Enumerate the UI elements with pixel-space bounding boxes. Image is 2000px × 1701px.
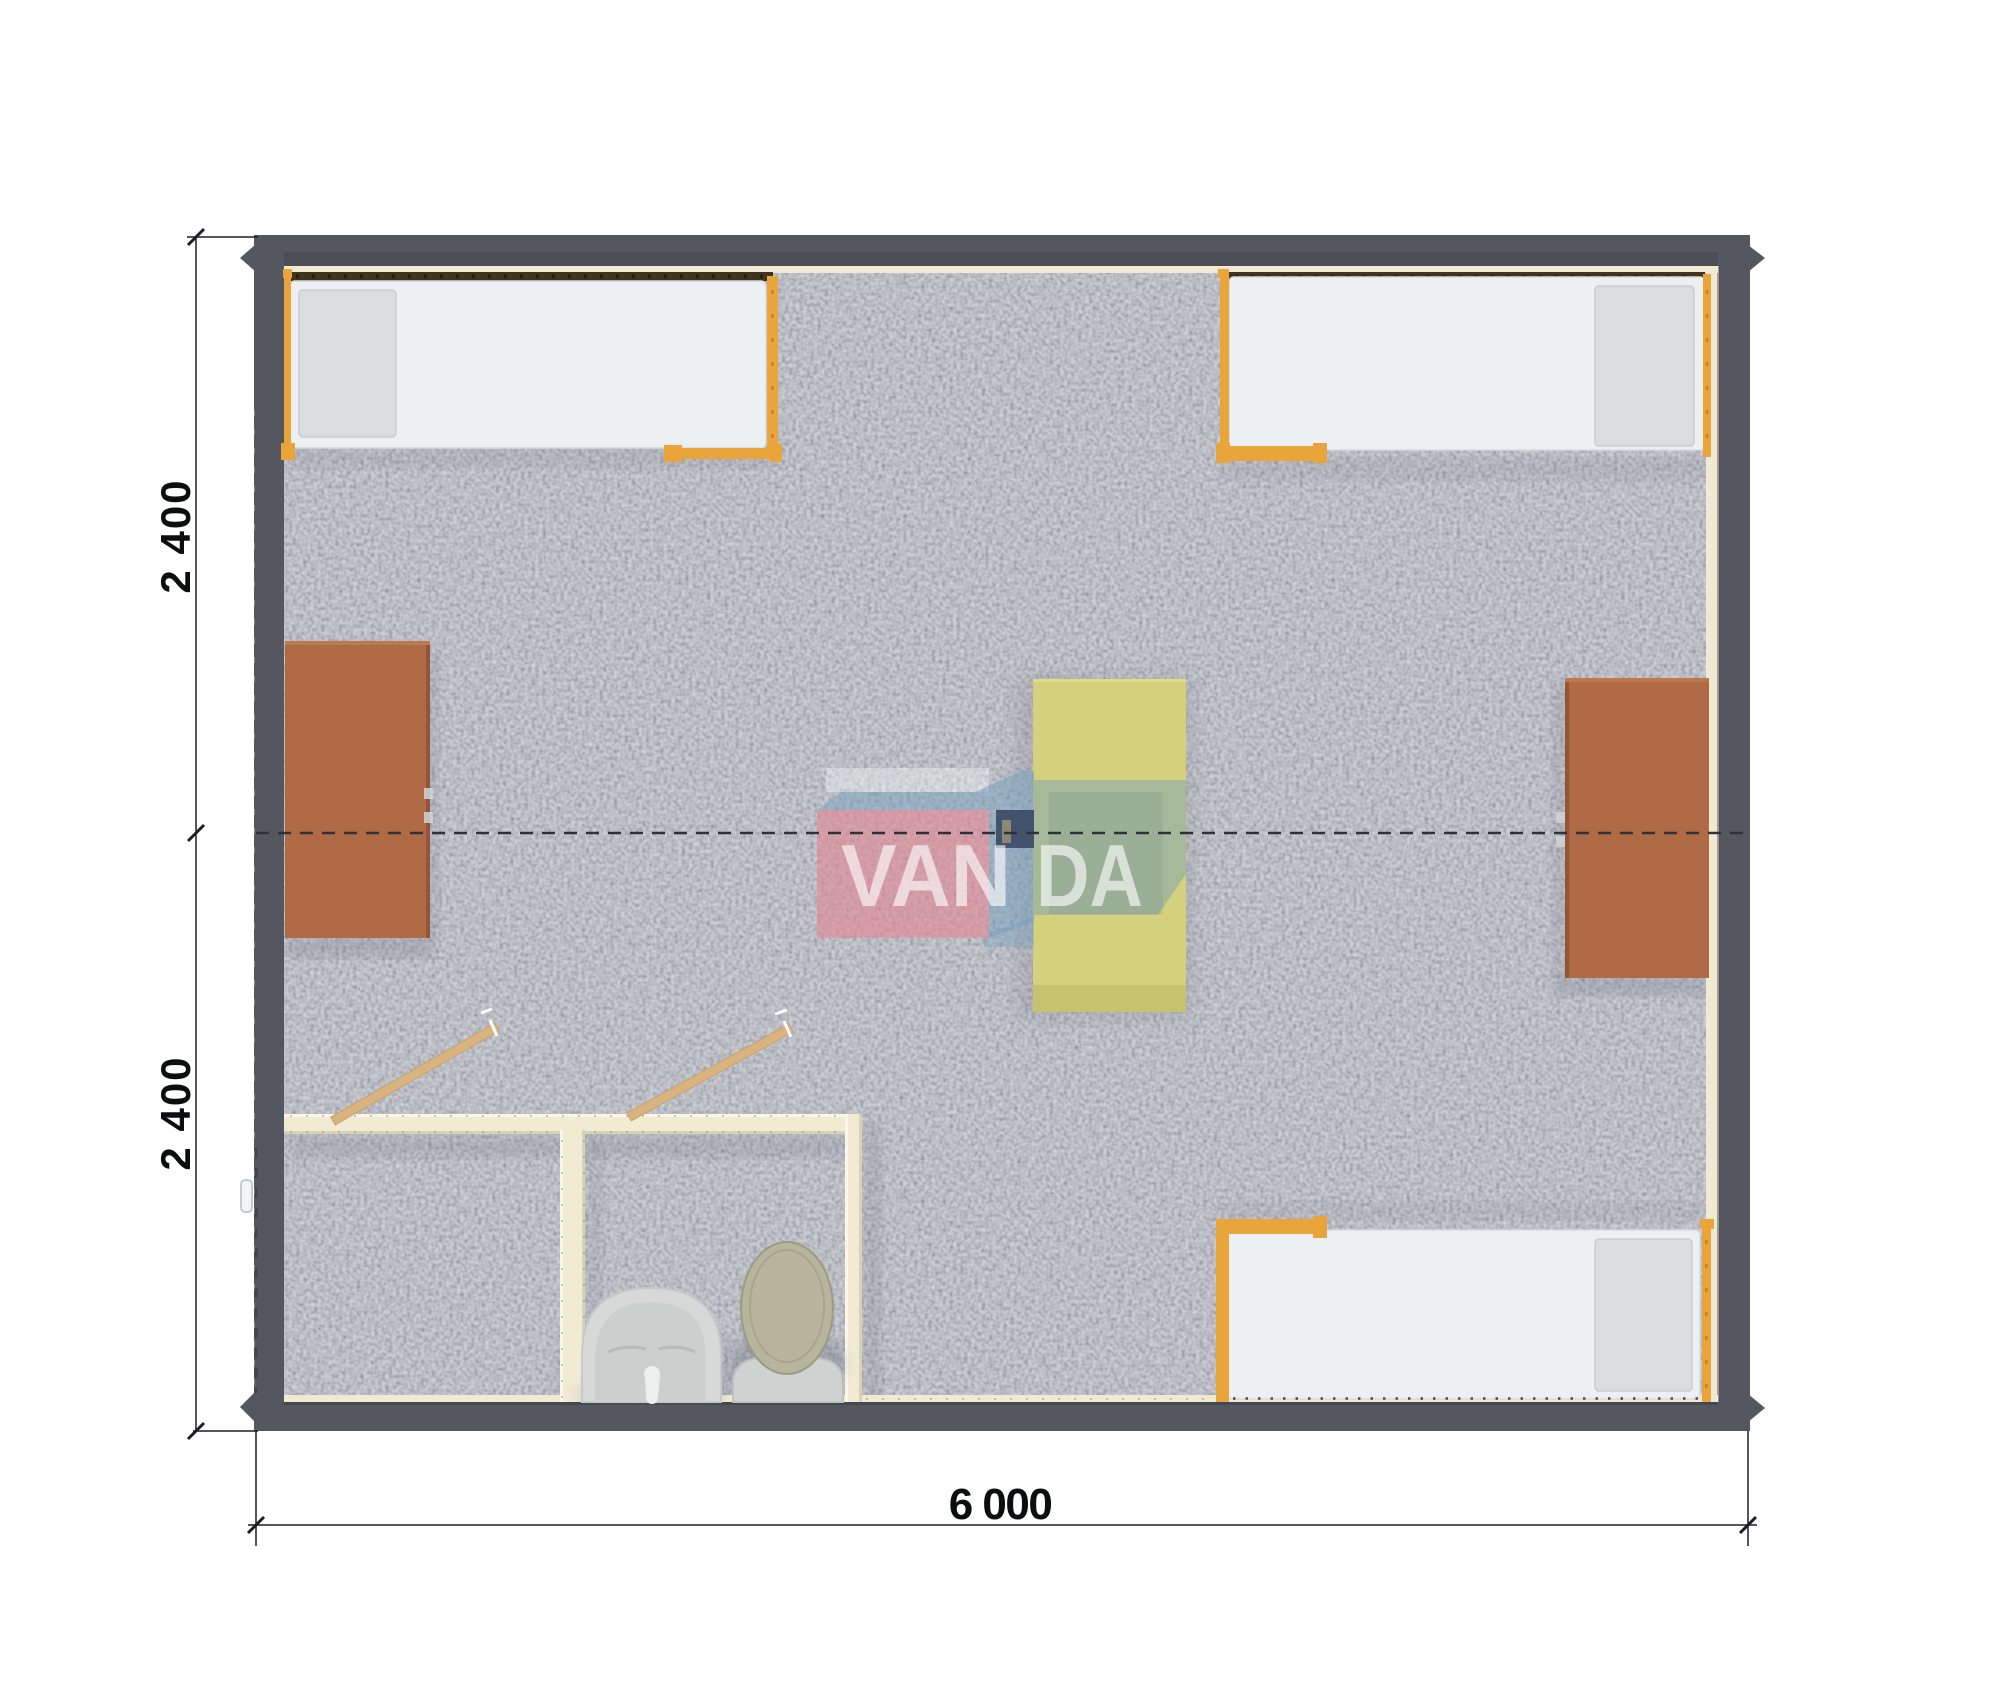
svg-text:2 400: 2 400 xyxy=(152,1055,199,1170)
svg-text:DA: DA xyxy=(1036,826,1143,925)
svg-text:6 000: 6 000 xyxy=(949,1480,1052,1529)
svg-text:VAN: VAN xyxy=(841,826,1011,925)
svg-text:2 400: 2 400 xyxy=(152,478,199,593)
